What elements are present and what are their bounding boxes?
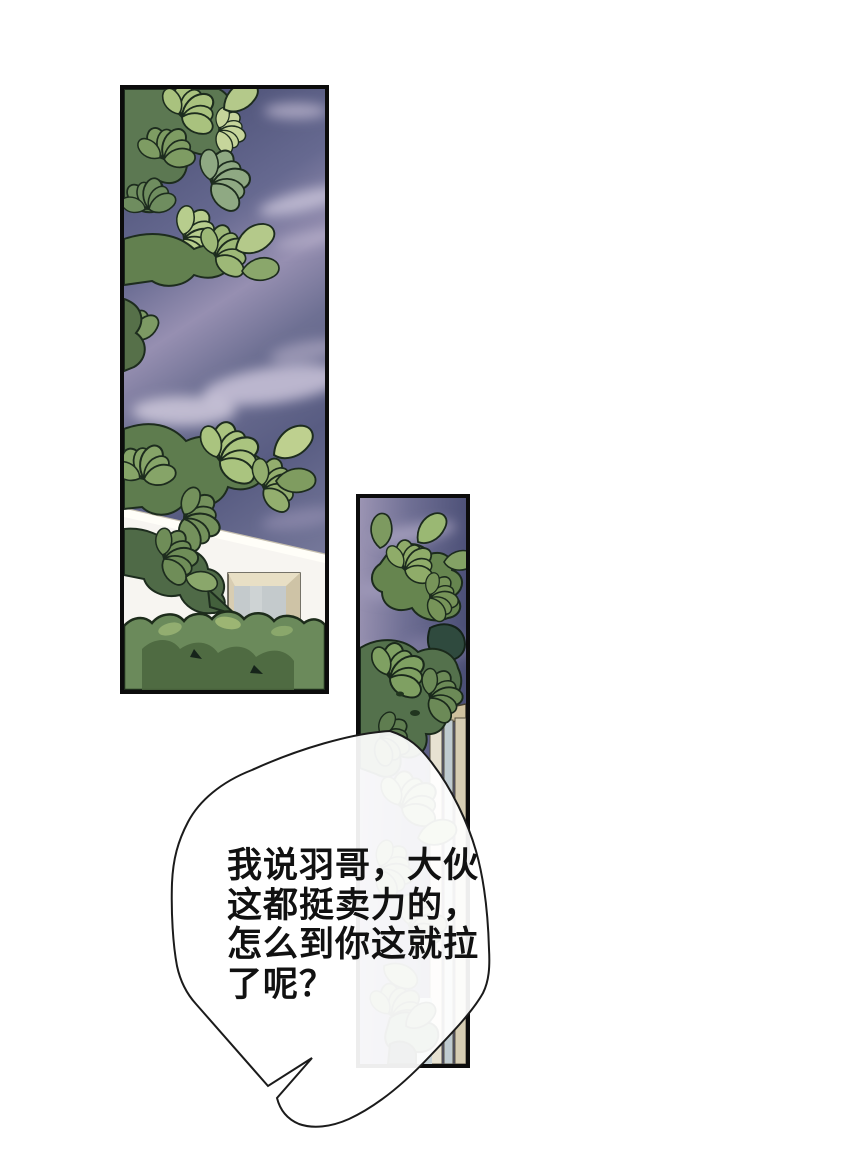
panel-1-artwork xyxy=(124,89,325,690)
panel-trees-sky-building xyxy=(120,85,329,694)
speech-line: 这都挺卖力的， xyxy=(227,886,507,926)
hedge xyxy=(124,612,325,691)
comic-page: 我说羽哥，大伙 这都挺卖力的， 怎么到你这就拉 了呢？ xyxy=(0,0,850,1167)
speech-line: 我说羽哥，大伙 xyxy=(227,846,507,886)
speech-text: 我说羽哥，大伙 这都挺卖力的， 怎么到你这就拉 了呢？ xyxy=(227,846,507,1004)
speech-line: 怎么到你这就拉 xyxy=(227,925,507,965)
speech-line: 了呢？ xyxy=(227,965,507,1005)
